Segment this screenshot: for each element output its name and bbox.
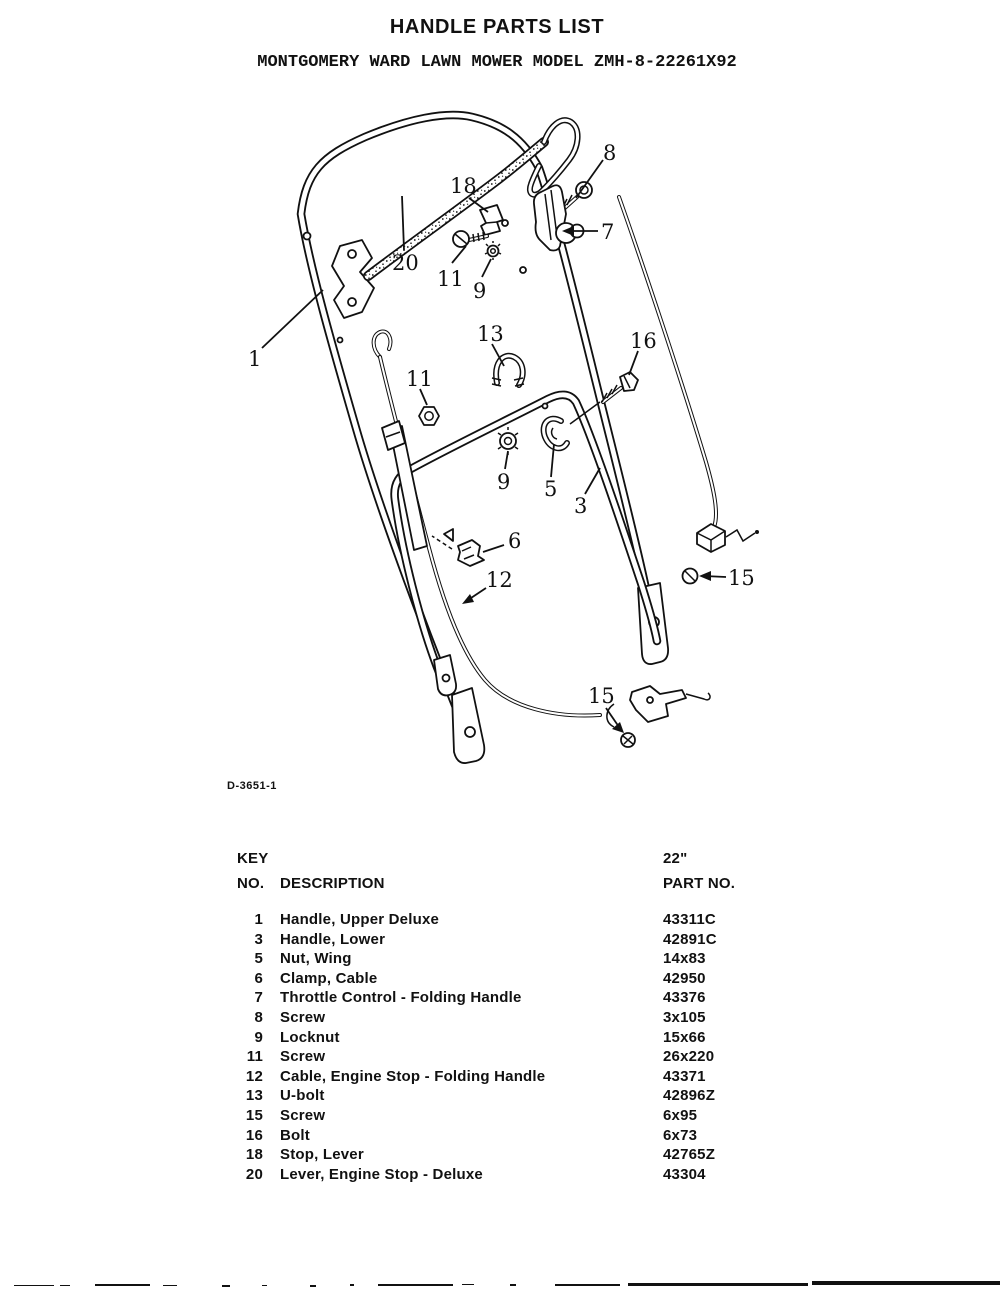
callout-13: 13	[477, 322, 504, 366]
table-row: 16Bolt6x73	[237, 1127, 797, 1147]
row-key-no: 11	[237, 1048, 263, 1065]
callout-11-lower: 11	[406, 367, 433, 405]
screw-15-bottom-part	[621, 733, 635, 747]
artifact-segment	[462, 1284, 474, 1285]
row-description: Throttle Control - Folding Handle	[280, 989, 522, 1006]
parts-table: KEY 22" NO. DESCRIPTION PART NO. 1Handle…	[237, 850, 797, 1185]
row-key-no: 16	[237, 1127, 263, 1144]
row-part-no: 43371	[663, 1068, 706, 1085]
row-description: Clamp, Cable	[280, 970, 377, 987]
callout-3: 3	[574, 468, 600, 518]
table-row: 6Clamp, Cable42950	[237, 970, 797, 990]
artifact-segment	[510, 1284, 516, 1286]
row-description: Handle, Lower	[280, 931, 385, 948]
table-row: 7Throttle Control - Folding Handle43376	[237, 989, 797, 1009]
artifact-segment	[812, 1281, 1000, 1285]
row-description: Screw	[280, 1048, 325, 1065]
callout-15-right: 15	[699, 566, 755, 590]
key-header: KEY	[237, 850, 268, 867]
row-description: Screw	[280, 1107, 325, 1124]
drawing-number: D-3651-1	[227, 780, 277, 792]
u-bolt-13-part	[492, 356, 524, 386]
callout-1: 1	[248, 290, 323, 371]
row-description: Handle, Upper Deluxe	[280, 911, 439, 928]
row-part-no: 6x95	[663, 1107, 697, 1124]
artifact-segment	[555, 1284, 620, 1286]
table-row: 1Handle, Upper Deluxe43311C	[237, 911, 797, 931]
row-part-no: 14x83	[663, 950, 706, 967]
row-key-no: 12	[237, 1068, 263, 1085]
callout-13-label: 13	[477, 322, 504, 346]
row-key-no: 9	[237, 1029, 263, 1046]
cable-clamp-6-part	[432, 529, 484, 566]
callout-18-label: 18	[450, 174, 477, 198]
artifact-segment	[95, 1284, 150, 1286]
callout-12: 12	[462, 568, 513, 604]
row-key-no: 5	[237, 950, 263, 967]
row-part-no: 6x73	[663, 1127, 697, 1144]
row-description: Nut, Wing	[280, 950, 352, 967]
row-part-no: 43304	[663, 1166, 706, 1183]
callout-7-label: 7	[601, 220, 614, 244]
parts-table-body: 1Handle, Upper Deluxe43311C3Handle, Lowe…	[237, 911, 797, 1185]
callout-5-label: 5	[544, 477, 557, 501]
nut-11-lower-part	[419, 407, 439, 425]
row-part-no: 42896Z	[663, 1087, 715, 1104]
row-key-no: 15	[237, 1107, 263, 1124]
callout-1-label: 1	[248, 347, 261, 371]
row-description: Screw	[280, 1009, 325, 1026]
row-description: Cable, Engine Stop - Folding Handle	[280, 1068, 545, 1085]
locknut-9-upper-part	[485, 241, 501, 260]
description-header: DESCRIPTION	[280, 875, 385, 892]
wing-nut-5-part	[544, 419, 567, 449]
table-row: 13U-bolt42896Z	[237, 1087, 797, 1107]
callout-16-label: 16	[630, 329, 657, 353]
row-description: Lever, Engine Stop - Deluxe	[280, 1166, 483, 1183]
row-part-no: 43311C	[663, 911, 716, 928]
callout-8: 8	[576, 141, 616, 198]
screw-11-upper-part	[453, 231, 487, 247]
artifact-segment	[60, 1285, 70, 1286]
table-row: 9Locknut15x66	[237, 1029, 797, 1049]
part-no-header: PART NO.	[663, 875, 735, 892]
artifact-segment	[310, 1285, 316, 1287]
row-description: Locknut	[280, 1029, 340, 1046]
callout-16: 16	[629, 329, 657, 375]
table-row: 12Cable, Engine Stop - Folding Handle433…	[237, 1068, 797, 1088]
cable-end-assembly-bottom	[607, 686, 710, 727]
callout-11-upper-label: 11	[437, 267, 464, 291]
locknut-9-lower-part	[498, 427, 518, 455]
table-row: 8Screw3x105	[237, 1009, 797, 1029]
table-row: 15Screw6x95	[237, 1107, 797, 1127]
row-part-no: 42950	[663, 970, 706, 987]
screw-15-right-part	[683, 569, 698, 584]
artifact-segment	[350, 1284, 354, 1286]
callout-15-bottom-label: 15	[588, 684, 615, 708]
row-key-no: 13	[237, 1087, 263, 1104]
row-part-no: 15x66	[663, 1029, 706, 1046]
row-part-no: 42765Z	[663, 1146, 715, 1163]
callout-9-lower: 9	[497, 451, 510, 494]
parts-diagram: 8 18 7 20 11 9 1 13 16 11 9 5	[0, 0, 1000, 820]
callout-15-right-label: 15	[728, 566, 755, 590]
callout-6-label: 6	[508, 529, 521, 553]
row-key-no: 7	[237, 989, 263, 1006]
throttle-control-part	[534, 185, 584, 250]
artifact-segment	[262, 1285, 267, 1286]
cable-end-fitting-right	[697, 524, 759, 552]
row-key-no: 1	[237, 911, 263, 928]
row-part-no: 26x220	[663, 1048, 714, 1065]
table-row: 11Screw26x220	[237, 1048, 797, 1068]
table-header-row-2: NO. DESCRIPTION PART NO.	[237, 875, 797, 900]
artifact-segment	[378, 1284, 453, 1286]
row-description: Bolt	[280, 1127, 310, 1144]
table-row: 20Lever, Engine Stop - Deluxe43304	[237, 1166, 797, 1186]
row-key-no: 3	[237, 931, 263, 948]
callout-15-bottom: 15	[588, 684, 624, 733]
callout-3-label: 3	[574, 494, 587, 518]
callout-8-label: 8	[603, 141, 616, 165]
callout-9-lower-label: 9	[497, 470, 510, 494]
row-part-no: 42891C	[663, 931, 717, 948]
callout-11-upper: 11	[437, 246, 466, 291]
callout-9-upper: 9	[473, 259, 491, 303]
artifact-segment	[163, 1285, 177, 1286]
row-part-no: 43376	[663, 989, 706, 1006]
callout-20-label: 20	[392, 251, 419, 275]
row-part-no: 3x105	[663, 1009, 706, 1026]
row-key-no: 6	[237, 970, 263, 987]
row-key-no: 18	[237, 1146, 263, 1163]
callout-6: 6	[483, 529, 521, 553]
row-description: U-bolt	[280, 1087, 325, 1104]
table-row: 3Handle, Lower42891C	[237, 931, 797, 951]
artifact-segment	[628, 1283, 808, 1286]
key-no-header: NO.	[237, 875, 264, 892]
table-header-row-1: KEY 22"	[237, 850, 797, 875]
callout-9-upper-label: 9	[473, 279, 486, 303]
callout-12-label: 12	[486, 568, 513, 592]
artifact-segment	[222, 1285, 230, 1287]
artifact-segment	[14, 1285, 54, 1286]
table-row: 5Nut, Wing14x83	[237, 950, 797, 970]
row-key-no: 20	[237, 1166, 263, 1183]
row-description: Stop, Lever	[280, 1146, 364, 1163]
row-key-no: 8	[237, 1009, 263, 1026]
callout-11-lower-label: 11	[406, 367, 433, 391]
table-row: 18Stop, Lever42765Z	[237, 1146, 797, 1166]
size-header: 22"	[663, 850, 687, 867]
callout-5: 5	[544, 444, 557, 501]
